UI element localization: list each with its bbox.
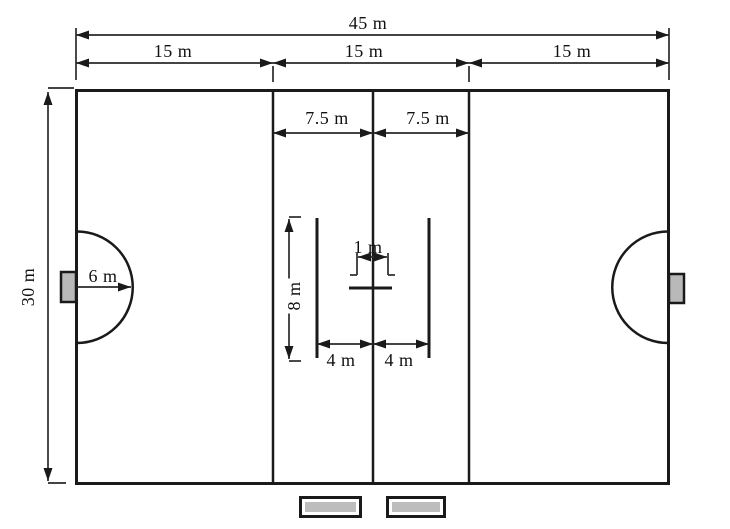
goal-left xyxy=(61,272,76,302)
dim-label-third-2: 15 m xyxy=(345,42,384,60)
dim-label-field-height: 30 m xyxy=(19,268,37,307)
penalty-arc-right xyxy=(612,232,668,344)
dim-label-arc-radius: 6 m xyxy=(88,267,117,285)
field xyxy=(61,90,684,484)
bench-right-pad xyxy=(392,502,440,512)
field-dimension-diagram: 45 m 15 m 15 m 15 m 7.5 m 7.5 m 30 m 6 m… xyxy=(0,0,730,529)
dim-label-center-offset-right: 4 m xyxy=(384,351,413,369)
dim-label-goal-width: 1 m xyxy=(353,238,382,256)
dim-label-half-2: 7.5 m xyxy=(406,109,450,127)
dim-label-center-zone-height: 8 m xyxy=(285,278,303,313)
dim-label-center-offset-left: 4 m xyxy=(326,351,355,369)
bench-left-pad xyxy=(305,502,356,512)
dim-label-half-1: 7.5 m xyxy=(305,109,349,127)
dim-label-third-3: 15 m xyxy=(553,42,592,60)
goal-right xyxy=(669,274,684,303)
diagram-canvas xyxy=(0,0,730,529)
benches xyxy=(301,498,445,517)
dim-label-third-1: 15 m xyxy=(154,42,193,60)
dim-label-total-width: 45 m xyxy=(349,14,388,32)
